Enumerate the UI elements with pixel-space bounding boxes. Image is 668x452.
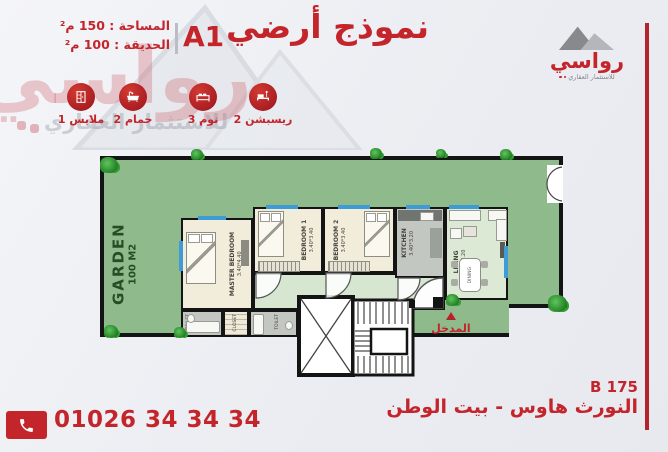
- brand-dot: [564, 76, 567, 79]
- total-area-stat: المساحة : 150 م²: [66, 16, 170, 35]
- plant-icon: [174, 327, 186, 338]
- brand-logo: رواسي للاستثمار العقاري: [543, 22, 631, 81]
- plan-overlay: [95, 145, 575, 380]
- model-code: A1: [183, 20, 224, 53]
- stair-landing: [371, 329, 407, 354]
- plant-icon: [500, 149, 512, 160]
- brand-dot: [559, 76, 562, 79]
- unit-code: B 175: [590, 378, 638, 396]
- phone-icon: [18, 417, 35, 434]
- plant-icon: [100, 157, 118, 173]
- watermark-dot: [30, 124, 39, 133]
- entrance-arrow-icon: [446, 312, 456, 320]
- feature-bath: [119, 83, 147, 111]
- sofa-icon: [255, 89, 271, 105]
- watermark-dot: [17, 121, 26, 130]
- plant-icon: [436, 149, 446, 158]
- project-name: النورث هاوس - بيت الوطن: [386, 396, 638, 418]
- phone-badge: [6, 411, 47, 439]
- brand-tagline: للاستثمار العقاري: [568, 73, 615, 81]
- door-arc: [326, 273, 351, 298]
- phone-number: 01026 34 34 34: [54, 407, 261, 433]
- garden-gate: [547, 165, 563, 203]
- mountains-logo-icon: [551, 22, 623, 50]
- plant-icon: [548, 295, 567, 312]
- flyer-root: رواسي للاستثمار العقاري المساحة : 150 م²…: [0, 0, 668, 452]
- feature-reception: [249, 83, 277, 111]
- entrance-marker: المدخل: [428, 312, 474, 335]
- feature-bed-label: 3 نوم: [170, 113, 236, 126]
- wardrobe-icon: [73, 89, 89, 105]
- right-accent-bar: [645, 23, 649, 430]
- feature-bath-label: 2 حمام: [100, 113, 166, 126]
- plant-icon: [446, 294, 459, 306]
- garden-area-stat: الحديقة : 100 م²: [66, 35, 170, 54]
- plant-icon: [370, 148, 382, 159]
- bathtub-icon: [125, 89, 141, 105]
- feature-reception-label: 2 ريسبشن: [230, 113, 296, 126]
- plant-icon: [104, 325, 118, 338]
- entrance-jamb: [409, 300, 415, 308]
- brand-name: رواسي: [543, 51, 631, 72]
- entrance-jamb: [433, 297, 443, 308]
- entrance-label: المدخل: [428, 322, 474, 335]
- feature-wardrobe: [67, 83, 95, 111]
- area-stats: المساحة : 150 م² الحديقة : 100 م²: [66, 16, 170, 54]
- bed-icon: [195, 89, 211, 105]
- plant-icon: [191, 149, 203, 160]
- brand-tagline-row: للاستثمار العقاري: [543, 73, 631, 81]
- feature-bed: [189, 83, 217, 111]
- page-title: نموذج أرضي: [226, 7, 429, 46]
- door-arc: [256, 273, 281, 298]
- header-divider: [175, 23, 178, 54]
